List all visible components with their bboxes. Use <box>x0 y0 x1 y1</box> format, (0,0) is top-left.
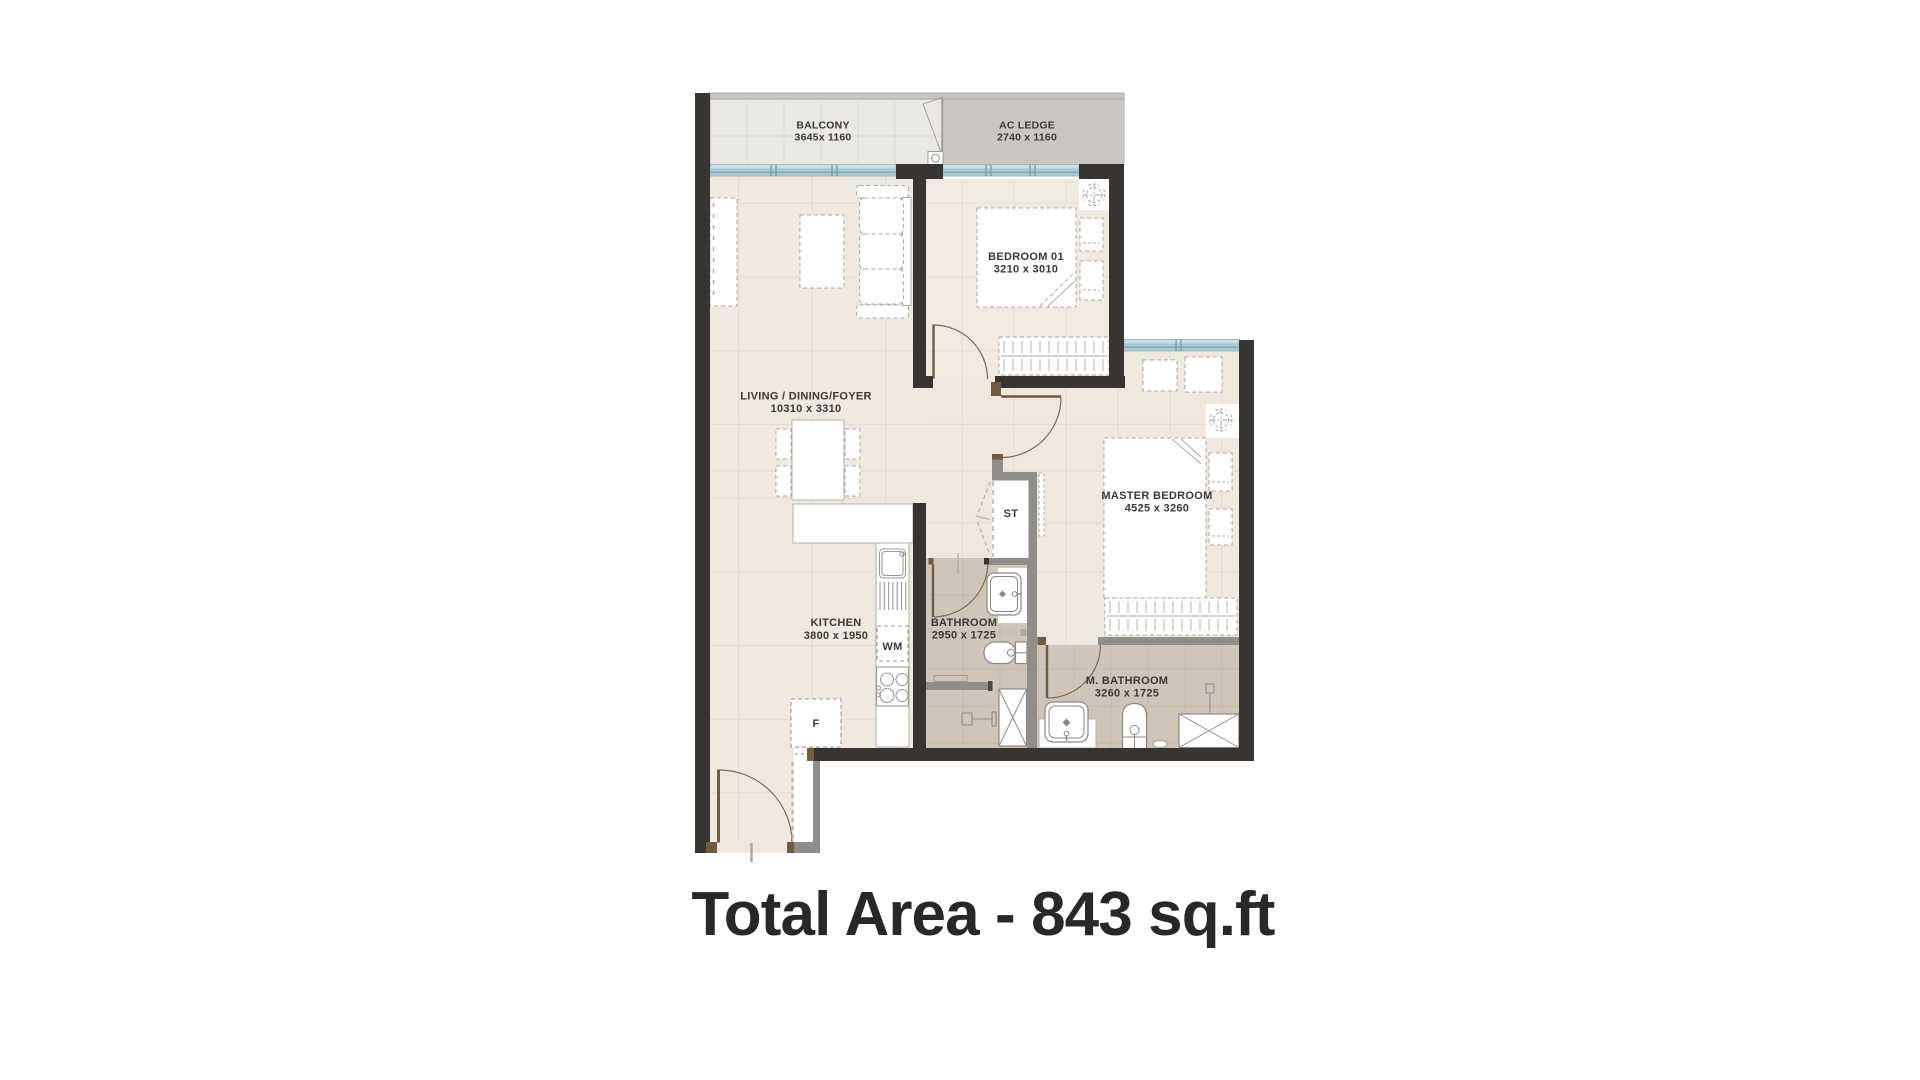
svg-text:2950 x 1725: 2950 x 1725 <box>932 630 996 642</box>
svg-text:3645x 1160: 3645x 1160 <box>795 132 852 144</box>
svg-text:4525 x 3260: 4525 x 3260 <box>1125 503 1189 515</box>
svg-text:3800 x 1950: 3800 x 1950 <box>804 630 868 642</box>
svg-text:10310 x 3310: 10310 x 3310 <box>771 403 842 415</box>
svg-text:3260 x 1725: 3260 x 1725 <box>1095 688 1159 700</box>
svg-text:BEDROOM 01: BEDROOM 01 <box>988 251 1064 263</box>
svg-text:BATHROOM: BATHROOM <box>931 617 997 629</box>
svg-text:AC LEDGE: AC LEDGE <box>999 120 1055 132</box>
svg-text:2740 x 1160: 2740 x 1160 <box>997 132 1057 144</box>
svg-text:MASTER BEDROOM: MASTER BEDROOM <box>1101 490 1212 502</box>
svg-text:LIVING / DINING/FOYER: LIVING / DINING/FOYER <box>740 391 872 403</box>
svg-text:BALCONY: BALCONY <box>796 120 849 132</box>
svg-text:F: F <box>812 718 819 730</box>
svg-text:3210 x 3010: 3210 x 3010 <box>994 264 1058 276</box>
svg-text:ST: ST <box>1004 508 1019 520</box>
svg-text:WM: WM <box>882 641 902 653</box>
svg-text:M. BATHROOM: M. BATHROOM <box>1086 675 1169 687</box>
svg-text:Total Area - 843 sq.ft: Total Area - 843 sq.ft <box>691 880 1274 949</box>
svg-text:KITCHEN: KITCHEN <box>811 617 862 629</box>
